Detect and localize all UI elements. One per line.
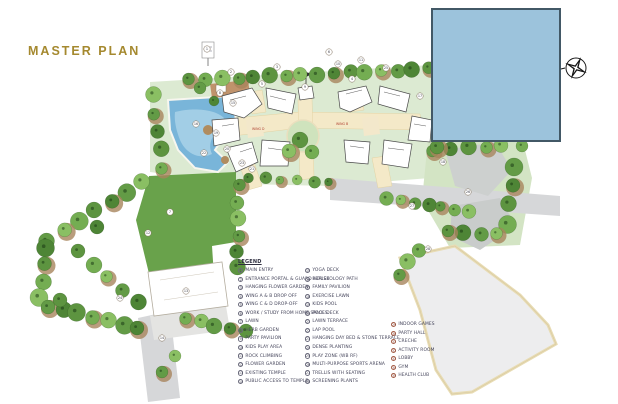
plan-marker: 22 bbox=[201, 150, 207, 156]
legend-item-label: TRELLIS WITH SEATING bbox=[312, 371, 365, 376]
legend-item-number: 5 bbox=[238, 302, 243, 307]
svg-text:14: 14 bbox=[160, 336, 164, 340]
plan-marker: 28 bbox=[425, 246, 431, 252]
legend-item-label: MAIN ENTRY bbox=[245, 268, 273, 273]
plan-marker: 2 bbox=[228, 69, 234, 75]
legend-item: 21LAWN TERRACE bbox=[305, 319, 391, 324]
svg-text:20: 20 bbox=[225, 147, 229, 151]
legend-item-label: HEALTH CLUB bbox=[398, 373, 429, 378]
legend-item-label: HANGING FLOWER GARDEN bbox=[245, 285, 308, 290]
legend-column-2: 15YOGA DECK16REFLEXOLOGY PATH17FAMILY PA… bbox=[305, 268, 391, 387]
legend-item-number: 22 bbox=[305, 328, 310, 333]
plan-marker: 11 bbox=[358, 57, 364, 63]
svg-text:17: 17 bbox=[418, 94, 422, 98]
plan-marker: 6 bbox=[326, 49, 332, 55]
legend-item-number: 20 bbox=[305, 311, 310, 316]
legend-item-label: CRECHE bbox=[398, 339, 417, 344]
legend-item: 10KIDS PLAY AREA bbox=[238, 345, 305, 350]
legend-item: 13EXISTING TEMPLE bbox=[238, 370, 305, 375]
svg-text:8: 8 bbox=[219, 91, 221, 95]
plan-marker: 20 bbox=[224, 146, 230, 152]
legend-item-label: PUBLIC ACCESS TO TEMPLE bbox=[245, 379, 308, 384]
plan-marker: 21 bbox=[249, 166, 255, 172]
svg-text:21: 21 bbox=[250, 167, 254, 171]
legend-item-number: 32 bbox=[391, 348, 396, 353]
plan-marker: 3 bbox=[274, 64, 280, 70]
legend-item-label: DENSE PLANTING bbox=[312, 345, 352, 350]
legend-item-number: 18 bbox=[305, 294, 310, 299]
plan-marker: 26 bbox=[465, 189, 471, 195]
legend-item-number: 11 bbox=[238, 353, 243, 358]
legend-item-number: 26 bbox=[305, 362, 310, 367]
legend-item: 11ROCK CLIMBING bbox=[238, 353, 305, 358]
legend-item-label: WING C & D DROP-OFF bbox=[245, 302, 297, 307]
legend-item: 26MULTI-PURPOSE SPORTS ARENA bbox=[305, 362, 391, 367]
svg-text:10: 10 bbox=[336, 62, 340, 66]
legend-item-number: 1 bbox=[238, 268, 243, 273]
legend-item-number: 7 bbox=[238, 319, 243, 324]
legend-item: 4WING A & B DROP OFF bbox=[238, 294, 305, 299]
legend-item: 6WORK / STUDY FROM HOME SPACES bbox=[238, 311, 305, 316]
svg-text:5: 5 bbox=[261, 82, 263, 86]
page-title: MASTER PLAN bbox=[28, 44, 140, 58]
legend-item-number: 35 bbox=[391, 373, 396, 378]
svg-text:24: 24 bbox=[118, 296, 122, 300]
legend-item: 30PARTY HALL bbox=[391, 331, 471, 336]
svg-text:16: 16 bbox=[194, 122, 198, 126]
legend-item: 2ENTRANCE PORTAL & GUARD HOUSE bbox=[238, 277, 305, 282]
svg-text:23: 23 bbox=[240, 161, 244, 165]
legend-item: 15YOGA DECK bbox=[305, 268, 391, 273]
legend-item-number: 34 bbox=[391, 365, 396, 370]
legend-item-number: 16 bbox=[305, 277, 310, 282]
plan-marker: 24 bbox=[117, 295, 123, 301]
legend-item-number: 14 bbox=[238, 379, 243, 384]
legend-item-label: ROCK CLIMBING bbox=[245, 354, 282, 359]
legend-item-label: INDOOR GAMES bbox=[398, 322, 434, 327]
legend-item-label: ACTIVITY ROOM bbox=[398, 348, 434, 353]
legend-item-number: 21 bbox=[305, 319, 310, 324]
svg-text:15: 15 bbox=[231, 101, 235, 105]
legend-item: 8HERB GARDEN bbox=[238, 328, 305, 333]
legend-item-number: 23 bbox=[305, 336, 310, 341]
legend-item: 5WING C & D DROP-OFF bbox=[238, 302, 305, 307]
plan-marker: 1 bbox=[204, 46, 210, 52]
plan-marker: 25 bbox=[383, 65, 389, 71]
svg-text:9: 9 bbox=[304, 85, 306, 89]
svg-text:1: 1 bbox=[206, 47, 208, 51]
legend-item-number: 6 bbox=[238, 311, 243, 316]
legend-item: 18EXERCISE LAWN bbox=[305, 294, 391, 299]
legend-item: 14PUBLIC ACCESS TO TEMPLE bbox=[238, 379, 305, 384]
legend-item-number: 3 bbox=[238, 285, 243, 290]
master-plan-page: 1234567891011121314151617181920212223242… bbox=[0, 0, 618, 404]
plan-marker: 17 bbox=[417, 93, 423, 99]
legend-item: 17FAMILY PAVILION bbox=[305, 285, 391, 290]
svg-text:6: 6 bbox=[328, 50, 330, 54]
legend-item-label: SCREENING PLANTS bbox=[312, 379, 358, 384]
legend-item-number: 19 bbox=[305, 302, 310, 307]
legend-item-number: 27 bbox=[305, 370, 310, 375]
legend-columns: 1MAIN ENTRY2ENTRANCE PORTAL & GUARD HOUS… bbox=[238, 268, 478, 387]
svg-text:19: 19 bbox=[214, 131, 218, 135]
legend-item: 35HEALTH CLUB bbox=[391, 373, 471, 378]
svg-text:18: 18 bbox=[441, 160, 445, 164]
plan-marker: 5 bbox=[259, 81, 265, 87]
legend-heading: LEGEND bbox=[238, 259, 478, 265]
svg-text:4: 4 bbox=[351, 77, 353, 81]
compass-rose-icon bbox=[560, 52, 592, 84]
legend-item-number: 31 bbox=[391, 339, 396, 344]
svg-text:27: 27 bbox=[410, 204, 414, 208]
svg-text:11: 11 bbox=[359, 58, 363, 62]
legend-item-number: 25 bbox=[305, 353, 310, 358]
wing-label: WING D bbox=[252, 127, 265, 131]
plan-marker: 4 bbox=[349, 76, 355, 82]
legend-item-label: EXERCISE LAWN bbox=[312, 294, 349, 299]
legend-item-number: 30 bbox=[391, 331, 396, 336]
plan-marker: 18 bbox=[440, 159, 446, 165]
legend-item: 29INDOOR GAMES bbox=[391, 322, 471, 327]
legend-column-1: 1MAIN ENTRY2ENTRANCE PORTAL & GUARD HOUS… bbox=[238, 268, 305, 387]
legend: LEGEND 1MAIN ENTRY2ENTRANCE PORTAL & GUA… bbox=[238, 259, 478, 387]
legend-item-number: 33 bbox=[391, 356, 396, 361]
legend-item: 12FLOWER GARDEN bbox=[238, 362, 305, 367]
legend-item: 3HANGING FLOWER GARDEN bbox=[238, 285, 305, 290]
wing-label: WING B bbox=[336, 122, 348, 126]
legend-item-label: EXISTING TEMPLE bbox=[245, 371, 286, 376]
legend-item: 25PLAY ZONE (WB RF) bbox=[305, 353, 391, 358]
legend-item-label: HERB GARDEN bbox=[245, 328, 279, 333]
svg-text:25: 25 bbox=[384, 66, 388, 70]
legend-item: 24DENSE PLANTING bbox=[305, 345, 391, 350]
svg-text:26: 26 bbox=[466, 190, 470, 194]
plan-marker: 14 bbox=[159, 335, 165, 341]
legend-item-number: 2 bbox=[238, 277, 243, 282]
legend-item-number: 24 bbox=[305, 345, 310, 350]
legend-item-label: HANGING DAY BED & STONE TERRACE bbox=[312, 336, 399, 341]
legend-item-label: PLAY ZONE (WB RF) bbox=[312, 354, 357, 359]
legend-item-number: 4 bbox=[238, 294, 243, 299]
svg-text:22: 22 bbox=[202, 151, 206, 155]
legend-item-number: 10 bbox=[238, 345, 243, 350]
legend-item-number: 13 bbox=[238, 370, 243, 375]
legend-item: 19KIDS POOL bbox=[305, 302, 391, 307]
legend-item-number: 9 bbox=[238, 336, 243, 341]
svg-text:2: 2 bbox=[230, 70, 232, 74]
plan-marker: 10 bbox=[335, 61, 341, 67]
svg-text:28: 28 bbox=[426, 247, 430, 251]
plan-marker: 7 bbox=[167, 209, 173, 215]
legend-item: 32ACTIVITY ROOM bbox=[391, 348, 471, 353]
legend-item-label: LAWN TERRACE bbox=[312, 319, 348, 324]
legend-item-label: YOGA DECK bbox=[312, 268, 339, 273]
svg-text:12: 12 bbox=[146, 231, 150, 235]
legend-item-label: LAWN bbox=[245, 319, 258, 324]
plan-marker: 8 bbox=[217, 90, 223, 96]
legend-item-label: KIDS PLAY AREA bbox=[245, 345, 282, 350]
plan-marker: 27 bbox=[409, 203, 415, 209]
plan-marker: 13 bbox=[183, 288, 189, 294]
legend-item-number: 15 bbox=[305, 268, 310, 273]
plan-marker: 15 bbox=[230, 100, 236, 106]
plan-marker: 23 bbox=[239, 160, 245, 166]
plan-marker: 19 bbox=[213, 130, 219, 136]
legend-item-label: LAP POOL bbox=[312, 328, 334, 333]
legend-item: 34GYM bbox=[391, 365, 471, 370]
legend-item: 22LAP POOL bbox=[305, 328, 391, 333]
legend-item: 23HANGING DAY BED & STONE TERRACE bbox=[305, 336, 391, 341]
legend-item-number: 12 bbox=[238, 362, 243, 367]
legend-item-number: 29 bbox=[391, 322, 396, 327]
plan-marker: 12 bbox=[145, 230, 151, 236]
svg-text:7: 7 bbox=[169, 210, 171, 214]
legend-item-number: 17 bbox=[305, 285, 310, 290]
legend-item-label: PARTY HALL bbox=[398, 331, 425, 336]
svg-text:3: 3 bbox=[276, 65, 278, 69]
legend-item: 28SCREENING PLANTS bbox=[305, 379, 391, 384]
legend-item: 27TRELLIS WITH SEATING bbox=[305, 370, 391, 375]
legend-item: 31CRECHE bbox=[391, 339, 471, 344]
legend-item: 9PARTY PAVILION bbox=[238, 336, 305, 341]
legend-item-label: REFLEXOLOGY PATH bbox=[312, 277, 357, 282]
legend-item-label: POOL DECK bbox=[312, 311, 338, 316]
legend-item-label: WING A & B DROP OFF bbox=[245, 294, 297, 299]
plan-marker: 9 bbox=[302, 84, 308, 90]
cover-box bbox=[431, 8, 561, 142]
svg-text:13: 13 bbox=[184, 289, 188, 293]
legend-item: 20POOL DECK bbox=[305, 311, 391, 316]
legend-item: 1MAIN ENTRY bbox=[238, 268, 305, 273]
legend-item: 7LAWN bbox=[238, 319, 305, 324]
entry-signboard bbox=[202, 42, 214, 66]
legend-item: 33LOBBY bbox=[391, 356, 471, 361]
legend-item-label: LOBBY bbox=[398, 356, 413, 361]
legend-item-number: 8 bbox=[238, 328, 243, 333]
legend-item-label: GYM bbox=[398, 365, 408, 370]
plan-marker: 16 bbox=[193, 121, 199, 127]
legend-column-3: 29INDOOR GAMES30PARTY HALL31CRECHE32ACTI… bbox=[391, 322, 471, 382]
legend-item: 16REFLEXOLOGY PATH bbox=[305, 277, 391, 282]
legend-item-number: 28 bbox=[305, 379, 310, 384]
legend-item-label: KIDS POOL bbox=[312, 302, 337, 307]
legend-item-label: PARTY PAVILION bbox=[245, 336, 281, 341]
legend-item-label: MULTI-PURPOSE SPORTS ARENA bbox=[312, 362, 385, 367]
legend-item-label: FLOWER GARDEN bbox=[245, 362, 285, 367]
legend-item-label: FAMILY PAVILION bbox=[312, 285, 350, 290]
